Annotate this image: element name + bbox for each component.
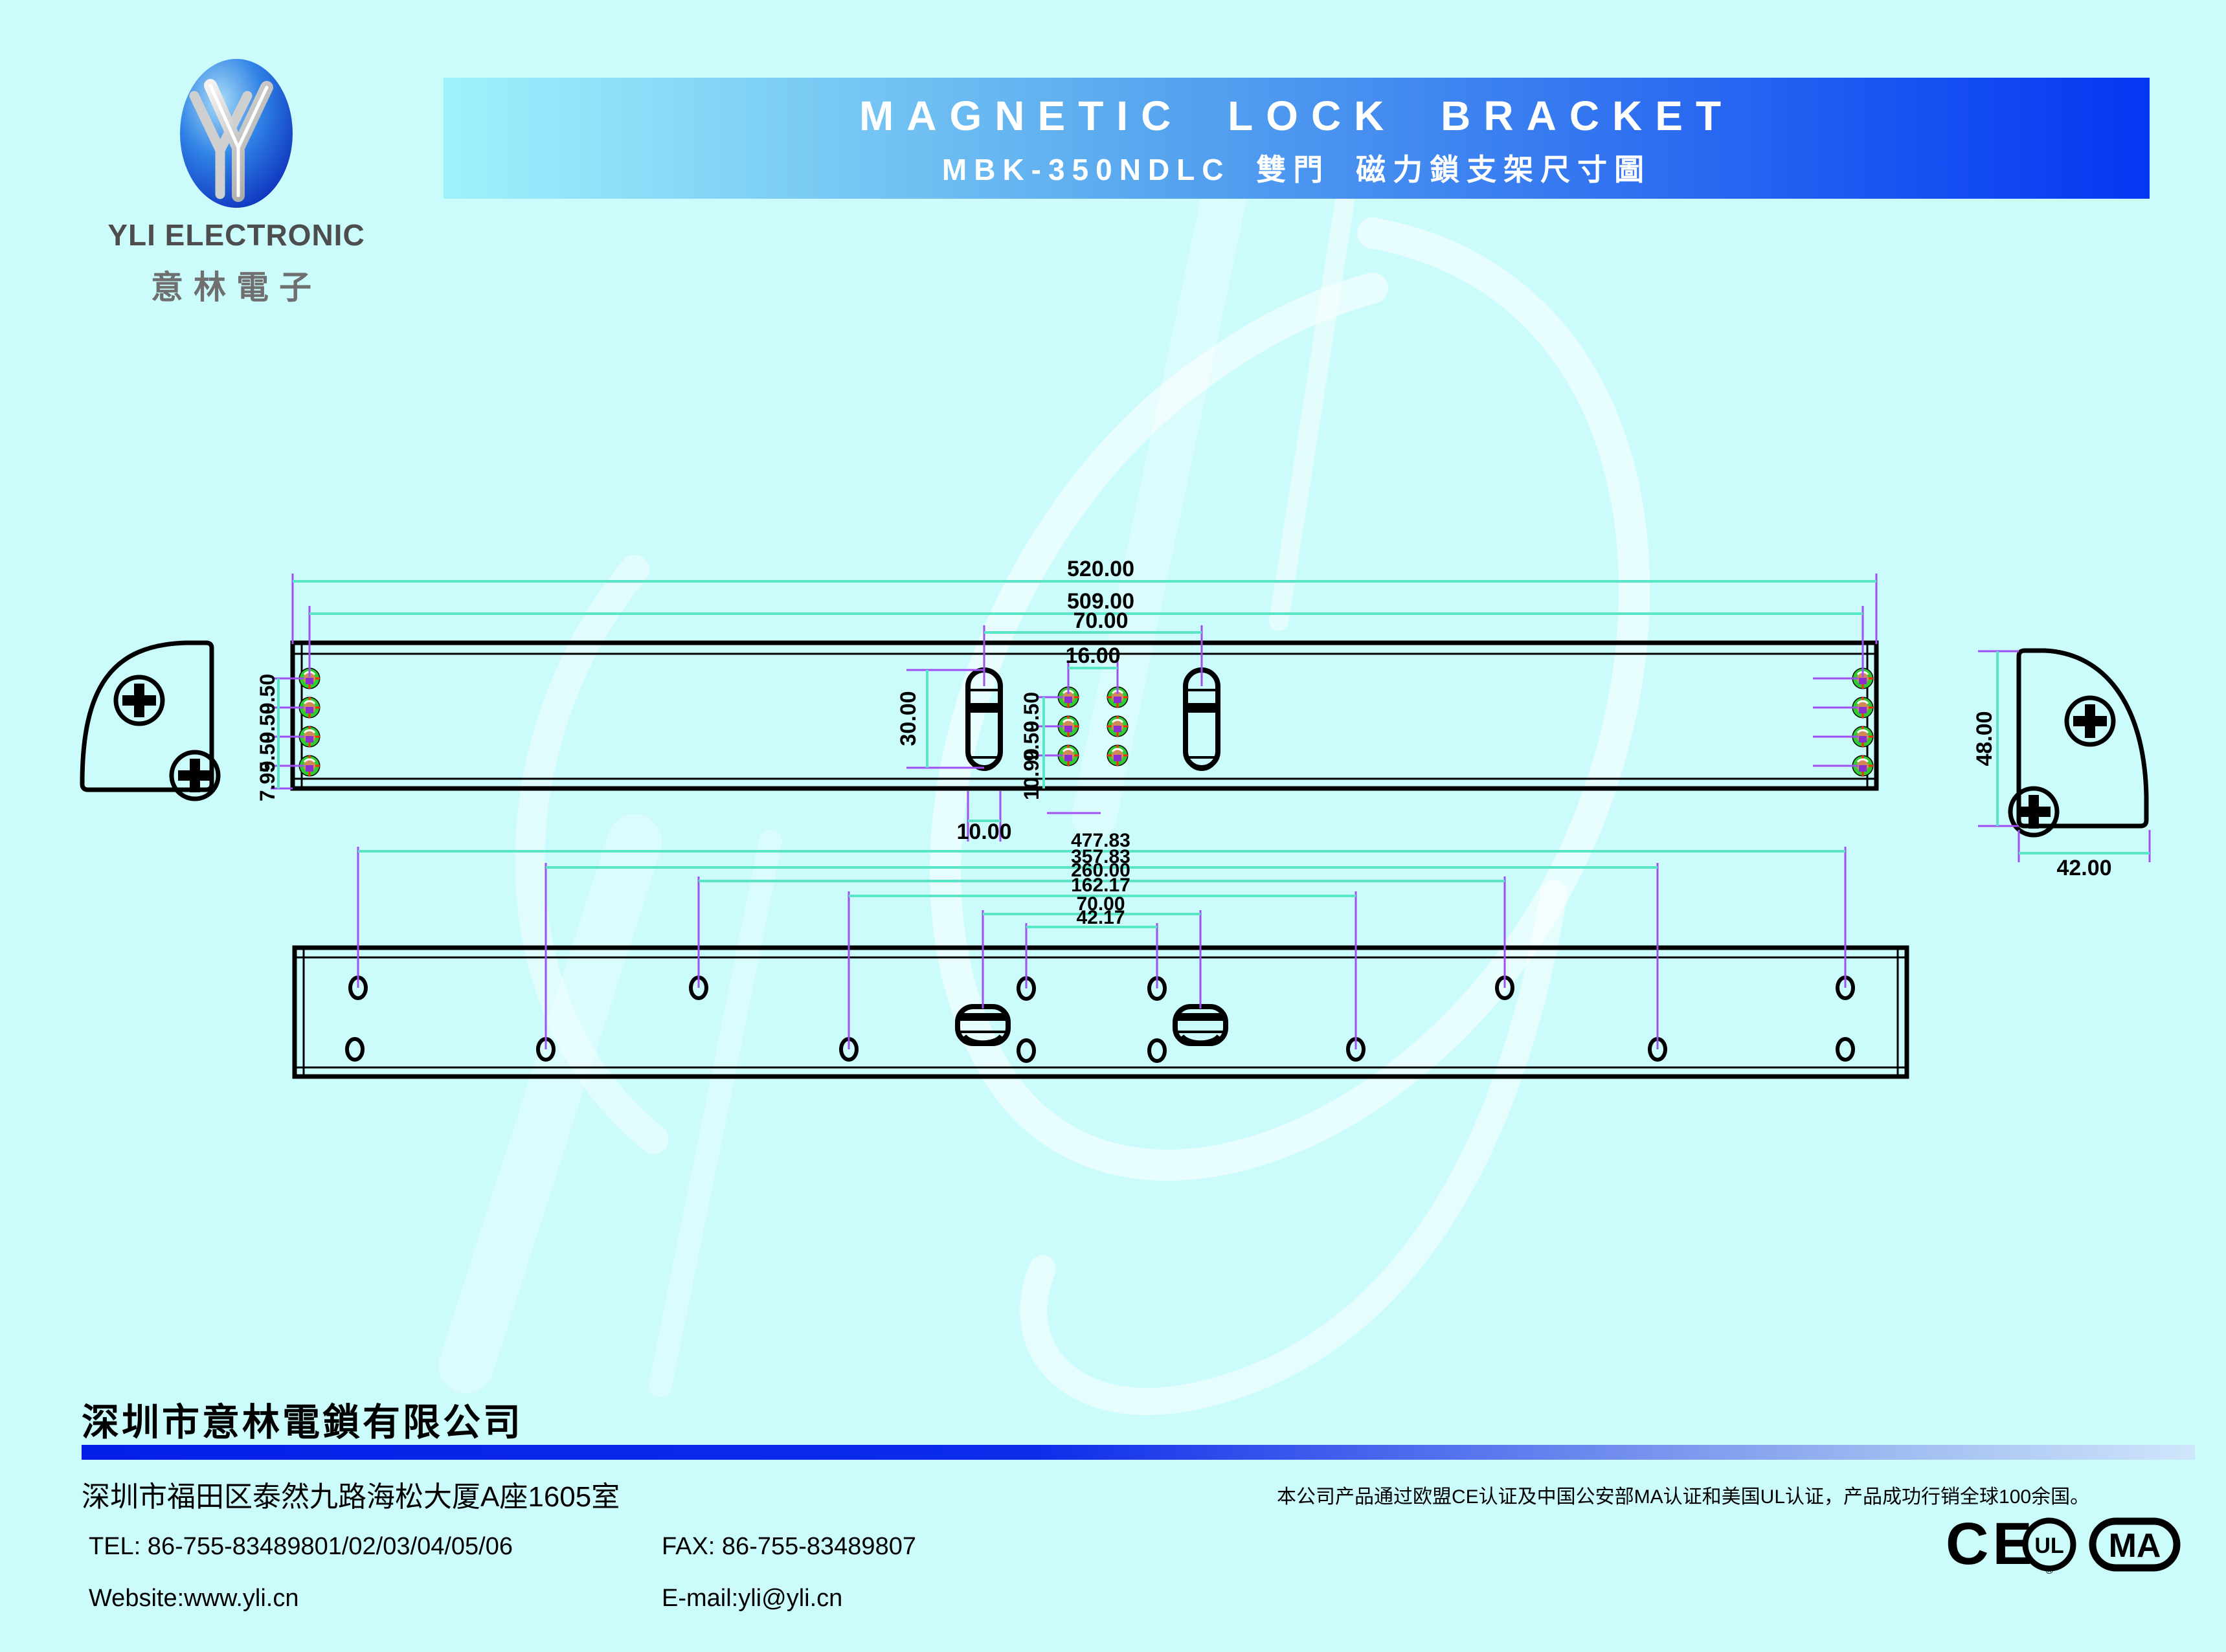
dim-overall-length: 520.00 xyxy=(1067,557,1134,581)
dim-endcap-height: 48.00 xyxy=(1972,711,1997,766)
dim-endcap-width: 42.00 xyxy=(2056,856,2111,880)
yli-logo xyxy=(180,59,293,208)
footer-website: Website:www.yli.cn xyxy=(89,1585,299,1613)
right-endcap xyxy=(2010,651,2146,835)
footer-divider-bar xyxy=(82,1445,2195,1460)
screw-icon xyxy=(172,752,218,799)
bottom-slots xyxy=(958,1007,1226,1044)
dim-slot-width: 10.00 xyxy=(956,820,1011,844)
certification-note: 本公司产品通过欧盟CE认证及中国公安部MA认证和美国UL认证，产品成功行销全球1… xyxy=(1277,1480,2089,1509)
yli-watermark xyxy=(466,168,1634,1401)
screw-icon xyxy=(2010,788,2057,835)
company-name-cn: 意林電子 xyxy=(78,262,395,308)
footer-company-name: 深圳市意林電鎖有限公司 xyxy=(82,1392,523,1446)
ma-mark-icon: MA xyxy=(2093,1521,2177,1568)
svg-text:MA: MA xyxy=(2109,1527,2161,1565)
dim-42: 42.17 xyxy=(1076,907,1125,928)
footer-tel: TEL: 86-755-83489801/02/03/04/05/06 xyxy=(89,1533,513,1561)
footer-address: 深圳市福田区泰然九路海松大厦A座1605室 xyxy=(82,1473,620,1515)
svg-text:UL: UL xyxy=(2034,1534,2063,1558)
dim-grid-width: 16.00 xyxy=(1065,643,1120,668)
page-title: MAGNETIC LOCK BRACKET xyxy=(444,92,2150,140)
dim-grid-pitch-3: 10.90 xyxy=(1020,748,1043,800)
title-banner: MAGNETIC LOCK BRACKET MBK-350NDLC 雙門 磁力鎖… xyxy=(444,78,2150,199)
dim-slot-spacing: 70.00 xyxy=(1073,608,1128,633)
page-subtitle: MBK-350NDLC 雙門 磁力鎖支架尺寸圖 xyxy=(444,146,2150,189)
svg-text:®: ® xyxy=(2045,1565,2053,1576)
screw-icon xyxy=(2067,698,2113,744)
screw-icon xyxy=(116,677,163,724)
dim-slot-length: 30.00 xyxy=(896,691,921,746)
footer-fax: FAX: 86-755-83489807 xyxy=(662,1533,916,1561)
left-endcap xyxy=(82,643,218,799)
company-name-en: YLI ELECTRONIC xyxy=(78,218,395,252)
dim-edge-pitch-4: 7.95 xyxy=(256,761,279,801)
footer-email: E-mail:yli@yli.cn xyxy=(662,1585,842,1613)
certification-marks: CE UL ® MA xyxy=(1946,1511,2177,1577)
